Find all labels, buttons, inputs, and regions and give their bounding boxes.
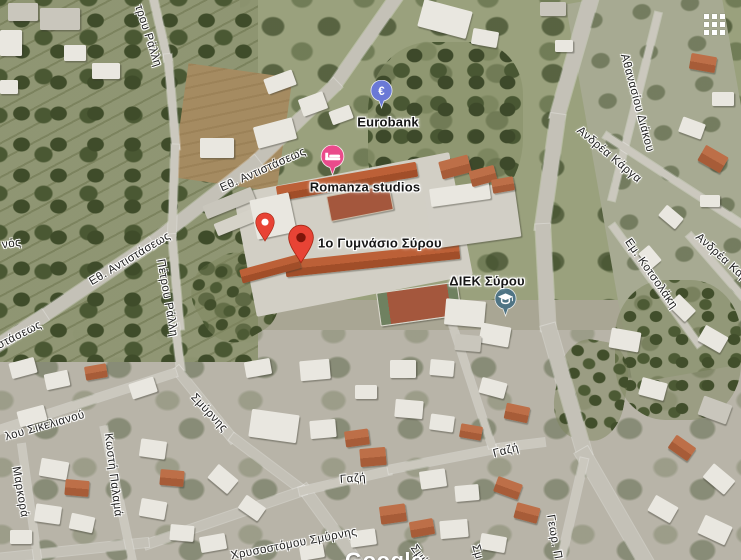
building	[394, 399, 423, 419]
pin-dot	[261, 219, 268, 226]
pin-body	[289, 225, 314, 263]
place-label-romanza[interactable]: Romanza studios	[310, 180, 421, 195]
map-canvas[interactable]: τρου Ράλλη Εθ. Αντιστάσεως Εθ. Αντιστάσε…	[0, 0, 741, 560]
building	[444, 298, 486, 327]
street-label: Γαζή	[339, 472, 366, 486]
building	[344, 428, 370, 447]
building	[0, 30, 22, 56]
building	[419, 468, 447, 489]
building	[700, 195, 720, 207]
building	[200, 138, 234, 158]
building	[429, 359, 454, 377]
building	[454, 484, 479, 502]
building	[439, 519, 468, 539]
building	[169, 524, 194, 542]
red-pin-small[interactable]	[254, 212, 276, 242]
building	[64, 45, 86, 61]
pin-body	[256, 213, 275, 241]
building	[359, 447, 386, 467]
place-label-diek[interactable]: ΔΙΕΚ Σύρου	[449, 274, 525, 289]
building	[10, 530, 32, 544]
building	[379, 503, 407, 524]
place-label-gymnasio[interactable]: 1ο Γυμνάσιο Σύρου	[318, 236, 442, 251]
building	[34, 503, 62, 524]
building	[159, 469, 184, 487]
place-label-eurobank[interactable]: Eurobank	[357, 115, 419, 130]
google-watermark: Google	[345, 548, 424, 560]
building	[555, 40, 573, 52]
building	[429, 413, 455, 432]
building	[309, 419, 336, 439]
building	[0, 80, 18, 94]
building	[454, 334, 481, 352]
building	[40, 8, 80, 30]
euro-icon: €	[378, 86, 385, 98]
building	[8, 3, 38, 21]
building	[540, 2, 566, 16]
pin-body	[495, 288, 516, 316]
building	[390, 360, 416, 378]
grid-dots-decoration	[704, 14, 725, 35]
eurobank-pin[interactable]: €	[370, 80, 393, 109]
building	[355, 385, 377, 399]
diek-pin[interactable]	[494, 288, 517, 317]
building	[92, 63, 120, 79]
building	[139, 438, 167, 459]
building	[299, 359, 331, 382]
building	[64, 479, 89, 497]
romanza-pin[interactable]	[320, 145, 345, 176]
pin-dot	[296, 233, 305, 242]
building	[712, 92, 734, 106]
red-pin-selected[interactable]	[286, 224, 316, 264]
